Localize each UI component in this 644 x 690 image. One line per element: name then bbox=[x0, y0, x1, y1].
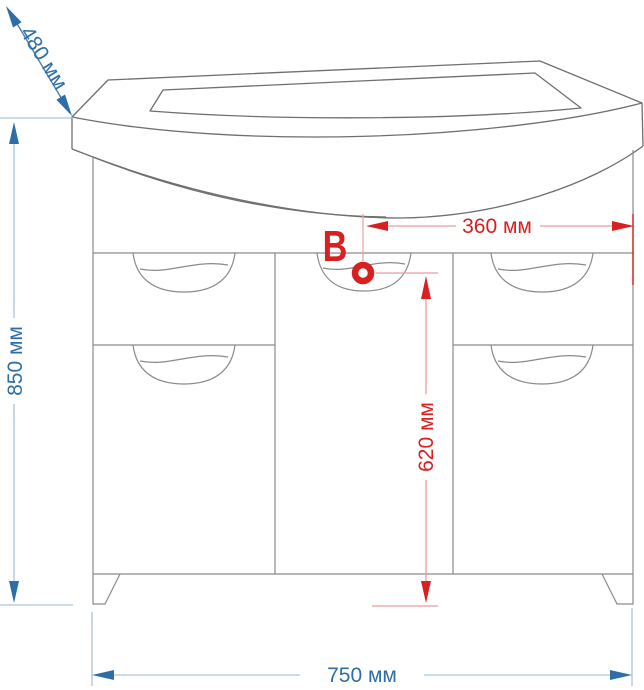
drain-point-label: B bbox=[323, 222, 348, 271]
dimension-drain-height-620: 620 мм bbox=[372, 273, 438, 606]
offset-arrow-left-icon bbox=[366, 221, 388, 231]
recess-left-drawer-wave bbox=[140, 264, 228, 271]
depth-arrow-up-icon bbox=[6, 6, 22, 28]
width-label: 750 мм bbox=[327, 664, 397, 687]
dimension-depth-480: 480 мм bbox=[6, 6, 72, 116]
depth-arrow-down-icon bbox=[56, 95, 72, 117]
recess-left-door bbox=[133, 345, 235, 384]
dimension-height-850: 850 мм bbox=[0, 118, 73, 605]
recess-right-door-wave bbox=[498, 356, 586, 363]
height-label: 850 мм bbox=[4, 326, 27, 396]
sink-apron-inner-curve bbox=[93, 157, 386, 217]
recess-left-drawer bbox=[133, 253, 235, 292]
recess-right-drawer bbox=[491, 253, 593, 292]
recess-right-drawer-wave bbox=[498, 264, 586, 271]
drain-point-marker: B bbox=[323, 222, 371, 281]
leg-right bbox=[602, 574, 633, 604]
offset-label: 360 мм bbox=[462, 215, 532, 238]
dimension-width-750: 750 мм bbox=[92, 608, 632, 687]
sink-right-edge bbox=[642, 103, 643, 146]
leg-left bbox=[93, 574, 120, 604]
vanity-dimension-diagram: 480 мм 850 мм 750 мм 360 мм 620 м bbox=[0, 0, 644, 690]
diagram-canvas: 480 мм 850 мм 750 мм 360 мм 620 м bbox=[0, 0, 644, 690]
sink-countertop bbox=[72, 61, 643, 218]
drain-height-arrow-down-icon bbox=[421, 581, 431, 603]
recess-right-door bbox=[491, 345, 593, 384]
depth-label: 480 мм bbox=[15, 23, 71, 94]
offset-arrow-right-icon bbox=[612, 221, 634, 231]
width-arrow-right-icon bbox=[610, 670, 632, 680]
recess-left-door-wave bbox=[140, 356, 228, 363]
width-arrow-left-icon bbox=[92, 670, 114, 680]
drain-height-arrow-up-icon bbox=[421, 276, 431, 299]
height-arrow-up-icon bbox=[9, 122, 19, 144]
height-arrow-down-icon bbox=[9, 581, 19, 603]
sink-apron-bottom-curve bbox=[72, 146, 643, 218]
drain-hole-icon bbox=[355, 265, 371, 281]
sink-basin-rim bbox=[150, 73, 581, 118]
drain-height-label: 620 мм bbox=[415, 402, 438, 472]
